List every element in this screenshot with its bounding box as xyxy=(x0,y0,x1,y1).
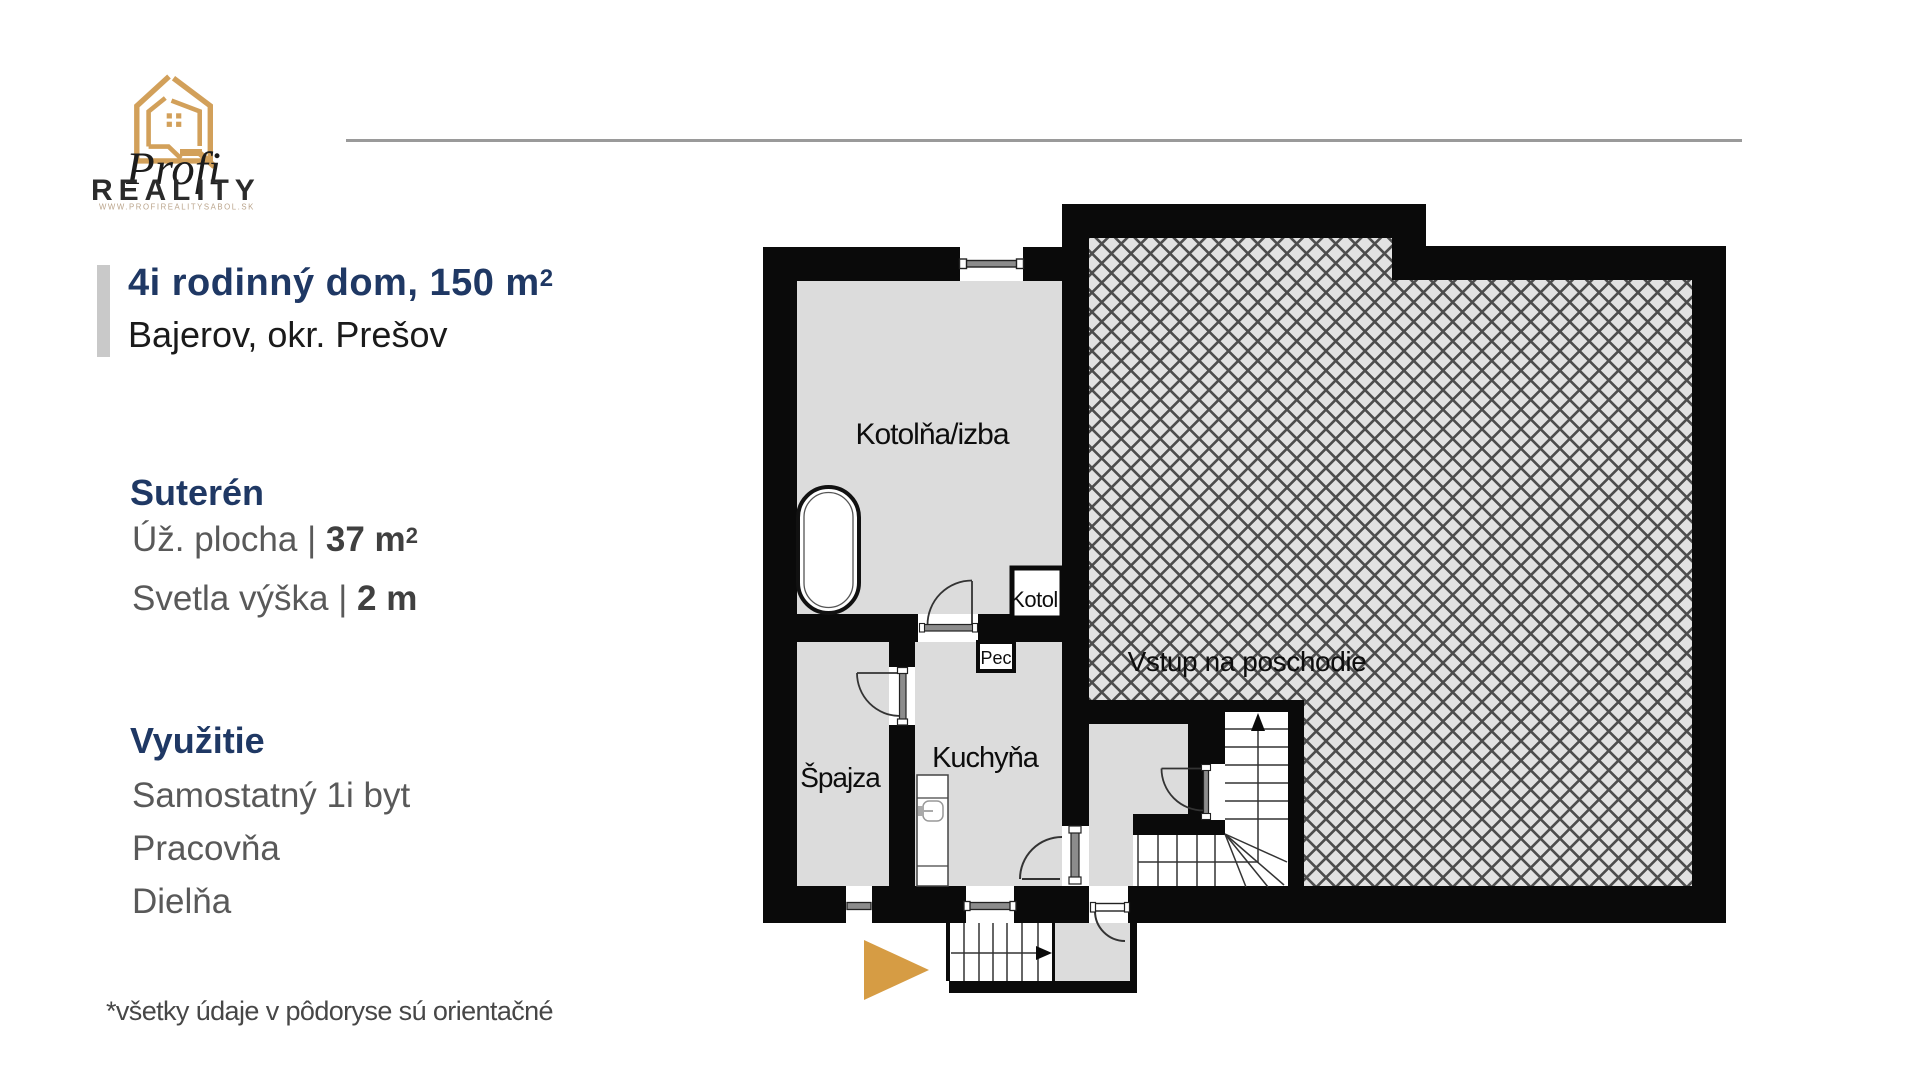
svg-text:Špajza: Špajza xyxy=(800,762,881,793)
svg-text:Pec: Pec xyxy=(980,648,1011,668)
svg-text:Kuchyňa: Kuchyňa xyxy=(932,742,1040,774)
svg-text:Kotol: Kotol xyxy=(1010,587,1058,612)
svg-text:Kotolňa/izba: Kotolňa/izba xyxy=(855,418,1009,451)
svg-text:Vstup na poschodie: Vstup na poschodie xyxy=(1128,646,1367,677)
